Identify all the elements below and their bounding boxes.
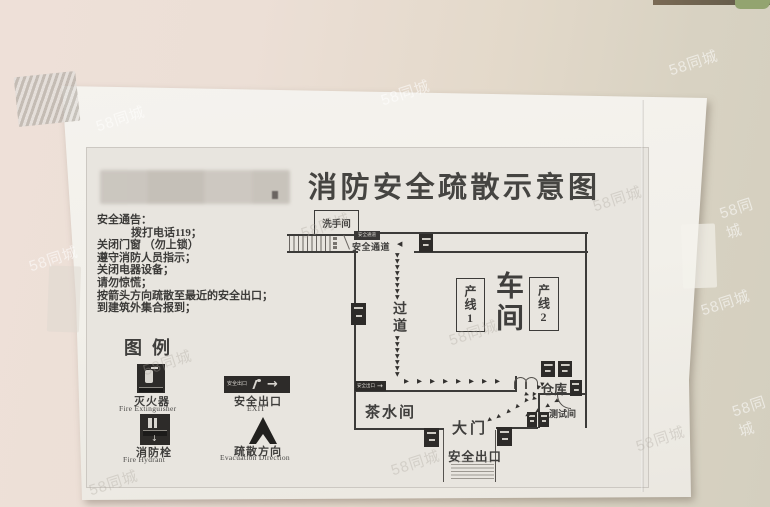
corridor-exit-sign-arrow: → bbox=[377, 382, 383, 390]
tearoom-label: 茶水间 bbox=[365, 401, 416, 422]
corridor-label: 过道 bbox=[388, 301, 408, 335]
fire-hydrant-sign-icon bbox=[351, 303, 366, 325]
legend-heading: 图例 bbox=[124, 334, 180, 360]
legend-sublabel-fire-extinguisher: Fire Extinguisher bbox=[119, 404, 176, 413]
room-washroom: 洗手间 bbox=[314, 210, 359, 235]
tape-top-left bbox=[14, 71, 81, 127]
small-print-mark bbox=[272, 191, 278, 199]
warehouse-label: 仓库 bbox=[541, 379, 567, 398]
passage-label: 安全通道 bbox=[352, 240, 390, 253]
warehouse-sign-icon bbox=[558, 361, 572, 377]
photo-of-evacuation-plan: 消防安全疏散示意图 安全通告： 拨打电话119； 关闭门窗 （勿上锁） 遵守消防… bbox=[0, 0, 770, 507]
wall-left bbox=[354, 250, 356, 430]
notice-line: 拨打电话119； bbox=[97, 227, 273, 240]
fire-extinguisher-icon bbox=[137, 364, 165, 393]
evacuation-arrow-icon: ▶ bbox=[456, 378, 461, 385]
legend-sublabel-exit: EXIT bbox=[247, 404, 265, 413]
workshop-label: 车间 bbox=[487, 271, 527, 335]
evacuation-arrow-icon: ▼ bbox=[395, 295, 400, 301]
exit-area-hatch bbox=[451, 461, 494, 479]
legend-sublabel-evacuation-direction: Evacuation Direction bbox=[220, 453, 290, 462]
fire-extinguisher-sign-icon bbox=[419, 234, 433, 252]
gate-label: 大门 bbox=[452, 417, 488, 438]
line2-label: 产线2 bbox=[536, 284, 553, 325]
paper-sheet-wrap: 消防安全疏散示意图 安全通告： 拨打电话119； 关闭门窗 （勿上锁） 遵守消防… bbox=[0, 0, 770, 507]
corridor-exit-sign-icon: 安全出口 → bbox=[355, 381, 386, 391]
stairs-tiny-text bbox=[333, 237, 337, 249]
evacuation-arrow-icon: ▶ bbox=[443, 378, 448, 385]
warehouse-side-sign-icon bbox=[570, 380, 582, 396]
notice-line: 请勿惊慌； bbox=[97, 277, 273, 290]
evacuation-arrow-icon: ▶ bbox=[495, 378, 500, 385]
paper-sheet: 消防安全疏散示意图 安全通告： 拨打电话119； 关闭门窗 （勿上锁） 遵守消防… bbox=[0, 0, 770, 507]
wall-right bbox=[585, 232, 587, 428]
passage-sign-badge: 安全通道 bbox=[354, 231, 380, 240]
evacuation-arrow-icon: ▶ bbox=[482, 378, 487, 385]
evacuation-arrow-icon: ▼ bbox=[395, 372, 400, 378]
gate-right-sign-icon bbox=[497, 427, 512, 446]
evacuation-arrow-icon: ▼ bbox=[540, 383, 545, 389]
washroom-label: 洗手间 bbox=[322, 216, 351, 230]
tape-left-middle bbox=[47, 265, 81, 332]
exit-sign-icon: 安全出口 → bbox=[224, 376, 290, 393]
hydrant-icon-down-arrow: ↓ bbox=[151, 434, 158, 443]
notice-line: 关闭电器设备； bbox=[97, 264, 273, 277]
production-line-2: 产线2 bbox=[529, 277, 559, 331]
exit-sign-icon-arrow: → bbox=[267, 377, 278, 392]
stairs-wall-bottom bbox=[287, 251, 358, 253]
passage-left-arrow-icon: ◀ bbox=[397, 241, 402, 248]
notice-line: 关闭门窗 （勿上锁） bbox=[97, 239, 273, 252]
line1-label: 产线1 bbox=[462, 285, 479, 326]
gate-left-sign-icon bbox=[424, 428, 439, 447]
evacuation-arrow-icon: ▶ bbox=[469, 378, 474, 385]
redacted-company-name bbox=[100, 170, 290, 204]
page-title: 消防安全疏散示意图 bbox=[308, 164, 601, 206]
notice-heading: 安全通告： bbox=[97, 214, 273, 227]
corridor-exit-sign-text: 安全出口 bbox=[357, 383, 375, 389]
notice-line: 到建筑外集合报到； bbox=[97, 302, 273, 315]
tape-right-middle bbox=[681, 223, 717, 288]
evacuation-arrow-icon: ▶ bbox=[430, 378, 435, 385]
exit-passage-left-line bbox=[443, 430, 444, 482]
evacuation-arrow-icon: ▶ bbox=[404, 378, 409, 385]
stairs-hatch bbox=[289, 236, 331, 251]
notice-line: 按箭头方向疏散至最近的安全出口； bbox=[97, 290, 273, 303]
legend-sublabel-fire-hydrant: Fire Hydrant bbox=[123, 455, 165, 464]
safety-notice: 安全通告： 拨打电话119； 关闭门窗 （勿上锁） 遵守消防人员指示； 关闭电器… bbox=[97, 214, 273, 315]
wall-top-outer bbox=[356, 232, 588, 234]
warehouse-sign-icon bbox=[541, 361, 555, 377]
fire-hydrant-icon: ↓ bbox=[140, 414, 170, 445]
exit-sign-icon-text: 安全出口 bbox=[227, 382, 249, 387]
paper-crease bbox=[641, 100, 644, 492]
testroom-label: 测试间 bbox=[549, 407, 576, 420]
evacuation-arrow-icon: ▶ bbox=[417, 378, 422, 385]
production-line-1: 产线1 bbox=[456, 278, 485, 332]
evacuation-direction-icon bbox=[249, 417, 277, 444]
notice-line: 遵守消防人员指示； bbox=[97, 252, 273, 265]
testroom-sign-icon bbox=[539, 412, 549, 427]
passage-badge-text: 安全通道 bbox=[358, 233, 376, 238]
wall-top-inner bbox=[414, 251, 588, 253]
